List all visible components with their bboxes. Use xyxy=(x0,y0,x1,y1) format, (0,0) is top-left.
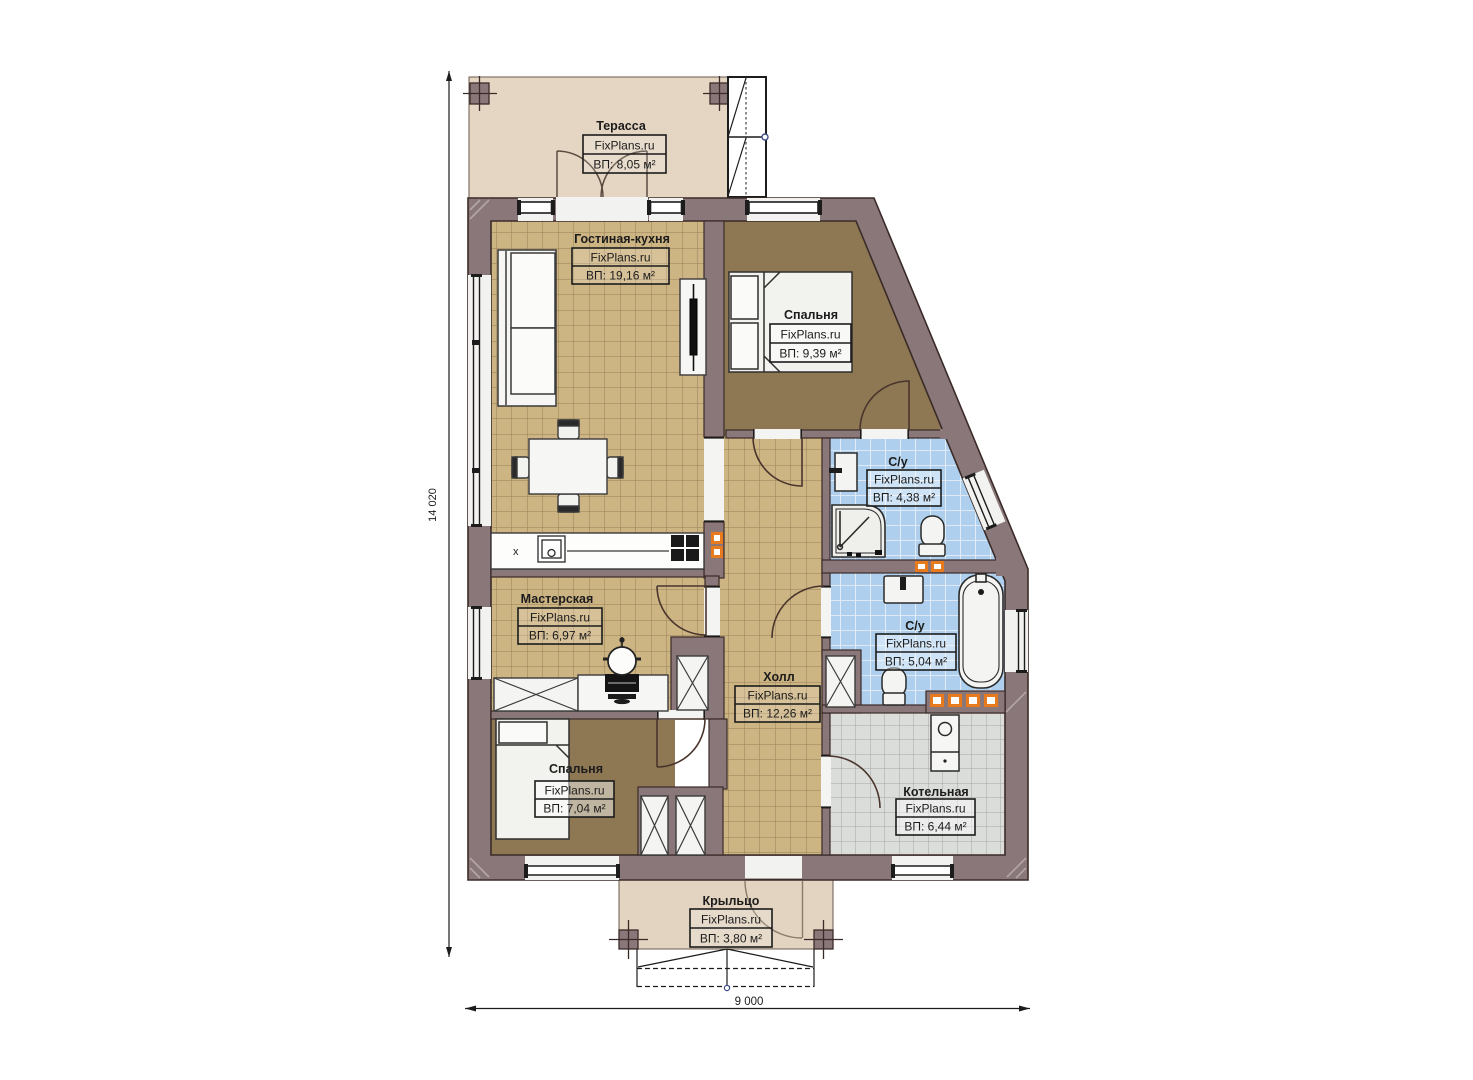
svg-text:FixPlans.ru: FixPlans.ru xyxy=(544,784,604,798)
svg-text:Холл: Холл xyxy=(763,670,794,684)
svg-text:FixPlans.ru: FixPlans.ru xyxy=(874,473,934,487)
svg-text:ВП: 7,04 м²: ВП: 7,04 м² xyxy=(543,802,605,816)
svg-text:FixPlans.ru: FixPlans.ru xyxy=(701,913,761,927)
svg-text:Спальня: Спальня xyxy=(549,762,603,776)
svg-text:FixPlans.ru: FixPlans.ru xyxy=(594,139,654,153)
svg-text:ВП: 3,80 м²: ВП: 3,80 м² xyxy=(700,932,762,946)
svg-text:С/у: С/у xyxy=(905,619,925,633)
svg-text:9 000: 9 000 xyxy=(735,996,764,1008)
svg-text:FixPlans.ru: FixPlans.ru xyxy=(530,611,590,625)
svg-text:FixPlans.ru: FixPlans.ru xyxy=(886,637,946,651)
svg-text:С/у: С/у xyxy=(888,455,908,469)
svg-text:Крыльцо: Крыльцо xyxy=(703,894,760,908)
svg-text:FixPlans.ru: FixPlans.ru xyxy=(780,328,840,342)
svg-text:ВП: 19,16 м²: ВП: 19,16 м² xyxy=(586,269,655,283)
svg-text:FixPlans.ru: FixPlans.ru xyxy=(905,802,965,816)
svg-text:Спальня: Спальня xyxy=(784,308,838,322)
svg-text:x: x xyxy=(513,546,519,558)
svg-text:ВП: 8,05 м²: ВП: 8,05 м² xyxy=(593,158,655,172)
svg-text:ВП: 6,97 м²: ВП: 6,97 м² xyxy=(529,629,591,643)
svg-text:Терасса: Терасса xyxy=(596,119,647,133)
svg-text:ВП: 4,38 м²: ВП: 4,38 м² xyxy=(873,491,935,505)
svg-text:ВП: 9,39 м²: ВП: 9,39 м² xyxy=(779,347,841,361)
svg-text:Мастерская: Мастерская xyxy=(521,592,594,606)
svg-text:FixPlans.ru: FixPlans.ru xyxy=(747,689,807,703)
svg-text:ВП: 6,44 м²: ВП: 6,44 м² xyxy=(904,820,966,834)
svg-text:ВП: 5,04 м²: ВП: 5,04 м² xyxy=(885,655,947,669)
svg-text:14 020: 14 020 xyxy=(427,488,439,522)
svg-text:Гостиная-кухня: Гостиная-кухня xyxy=(574,232,670,246)
svg-text:Котельная: Котельная xyxy=(903,785,968,799)
svg-text:ВП: 12,26 м²: ВП: 12,26 м² xyxy=(743,707,812,721)
svg-text:FixPlans.ru: FixPlans.ru xyxy=(590,251,650,265)
